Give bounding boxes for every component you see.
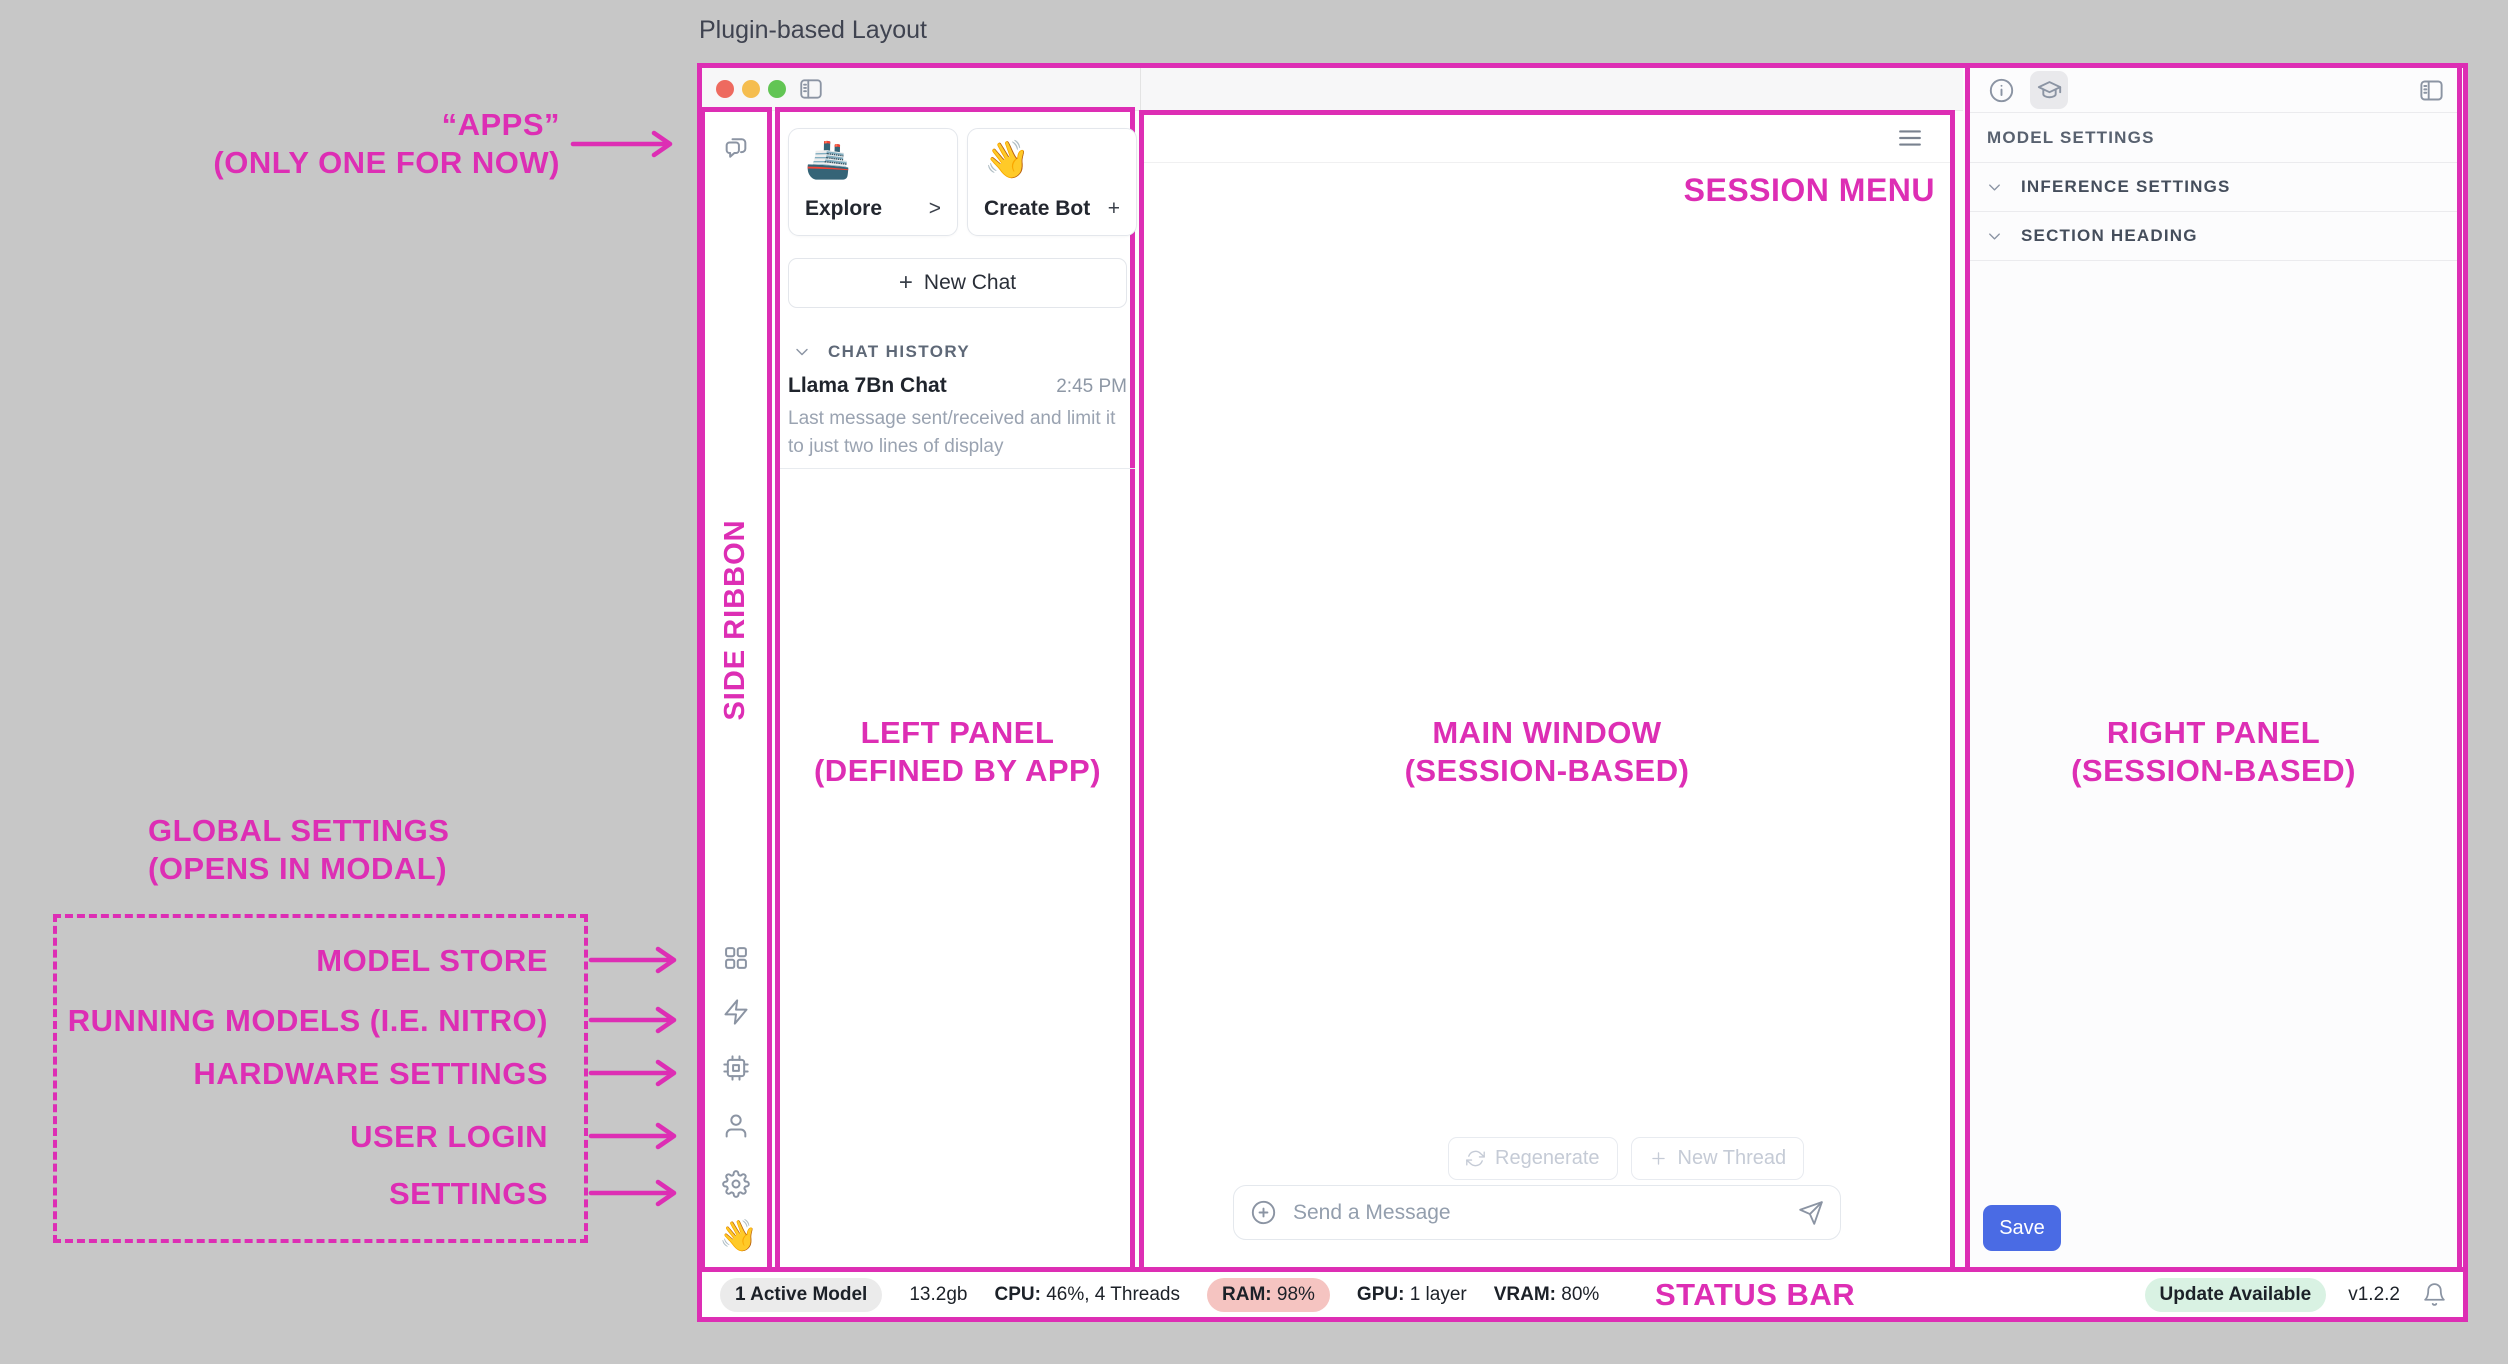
side-ribbon-annotation: SIDE RIBBON xyxy=(718,460,754,780)
right-panel-annotation: RIGHT PANEL (SESSION-BASED) xyxy=(1970,714,2457,791)
left-panel: 🚢 Explore > 👋 Create Bot + + New Chat CH… xyxy=(775,107,1135,1272)
status-bar-right: Update Available v1.2.2 xyxy=(2145,1272,2447,1317)
global-settings-annotation: GLOBAL SETTINGS (OPENS IN MODAL) xyxy=(148,812,449,889)
refresh-icon xyxy=(1466,1149,1485,1168)
create-bot-card-label: Create Bot xyxy=(984,197,1090,221)
plus-glyph: + xyxy=(899,269,913,297)
cpu-usage: CPU: 46%, 4 Threads xyxy=(994,1284,1180,1306)
save-button[interactable]: Save xyxy=(1983,1205,2061,1251)
wave-emoji: 👋 xyxy=(984,141,1030,178)
right-panel-header xyxy=(1970,68,2457,113)
running-models-arrow xyxy=(588,1005,692,1035)
create-bot-card[interactable]: 👋 Create Bot + xyxy=(967,128,1137,236)
wave-emoji[interactable]: 👋 xyxy=(719,1220,758,1251)
settings-annotation: SETTINGS xyxy=(60,1175,548,1213)
update-available-badge[interactable]: Update Available xyxy=(2145,1278,2327,1312)
regenerate-button[interactable]: Regenerate xyxy=(1448,1137,1618,1180)
model-store-icon[interactable] xyxy=(722,944,750,972)
send-icon[interactable] xyxy=(1798,1200,1824,1226)
sidebar-toggle-icon[interactable] xyxy=(798,76,824,102)
status-bar: 1 Active Model 13.2gb CPU: 46%, 4 Thread… xyxy=(702,1272,2463,1317)
plus-icon xyxy=(1649,1149,1668,1168)
chat-app-icon[interactable] xyxy=(722,134,750,162)
settings-arrow xyxy=(588,1178,692,1208)
gpu-usage: GPU: 1 layer xyxy=(1357,1284,1467,1306)
user-login-arrow xyxy=(588,1121,692,1151)
frame-title: Plugin-based Layout xyxy=(699,16,927,45)
section-inference-settings[interactable]: INFERENCE SETTINGS xyxy=(1970,163,2457,212)
ship-emoji: 🚢 xyxy=(805,141,851,178)
app-version: v1.2.2 xyxy=(2348,1284,2400,1306)
explore-card-label: Explore xyxy=(805,197,882,221)
running-models-icon[interactable] xyxy=(722,998,750,1026)
notifications-bell-icon[interactable] xyxy=(2422,1282,2447,1307)
assistant-tab[interactable] xyxy=(2030,71,2068,109)
window-titlebar xyxy=(702,68,1963,111)
new-chat-button[interactable]: + New Chat xyxy=(788,258,1127,308)
explore-card[interactable]: 🚢 Explore > xyxy=(788,128,958,236)
status-bar-left: 1 Active Model 13.2gb CPU: 46%, 4 Thread… xyxy=(720,1272,1599,1317)
main-window: SESSION MENU MAIN WINDOW (SESSION-BASED)… xyxy=(1139,110,1955,1272)
new-chat-label: New Chat xyxy=(924,271,1016,295)
chat-list-item[interactable]: Llama 7Bn Chat 2:45 PM Last message sent… xyxy=(788,374,1127,460)
user-login-icon[interactable] xyxy=(722,1112,750,1140)
ram-usage-badge: RAM: 98% xyxy=(1207,1278,1330,1312)
memory-usage: 13.2gb xyxy=(909,1284,967,1306)
active-model-badge[interactable]: 1 Active Model xyxy=(720,1278,882,1312)
graduation-cap-icon xyxy=(2036,77,2063,104)
plus-glyph: + xyxy=(1108,197,1120,221)
chevron-down-icon xyxy=(792,342,812,362)
chat-history-header[interactable]: CHAT HISTORY xyxy=(792,342,1122,362)
status-bar-annotation: STATUS BAR xyxy=(1655,1276,1855,1314)
session-menu-icon[interactable] xyxy=(1896,126,1924,150)
info-tab[interactable] xyxy=(1982,71,2020,109)
model-settings-header: MODEL SETTINGS xyxy=(1970,113,2457,163)
titlebar-divider xyxy=(1140,68,1141,110)
vram-usage: VRAM: 80% xyxy=(1494,1284,1600,1306)
zoom-button[interactable] xyxy=(768,80,786,98)
hardware-settings-annotation: HARDWARE SETTINGS xyxy=(60,1055,548,1093)
settings-icon[interactable] xyxy=(722,1170,750,1198)
chat-item-time: 2:45 PM xyxy=(1056,376,1127,398)
message-input[interactable] xyxy=(1291,1200,1784,1226)
message-input-container xyxy=(1233,1185,1841,1240)
new-thread-button[interactable]: New Thread xyxy=(1631,1137,1805,1180)
list-divider xyxy=(780,468,1135,469)
chat-item-preview: Last message sent/received and limit it … xyxy=(788,405,1118,460)
apps-arrow xyxy=(570,129,688,159)
chat-history-label: CHAT HISTORY xyxy=(828,342,970,362)
main-window-annotation: MAIN WINDOW (SESSION-BASED) xyxy=(1347,714,1747,791)
chevron-down-icon xyxy=(1985,227,2004,246)
hardware-settings-icon[interactable] xyxy=(722,1054,750,1082)
right-panel: MODEL SETTINGS INFERENCE SETTINGS SECTIO… xyxy=(1965,63,2462,1272)
session-menu-annotation: SESSION MENU xyxy=(1684,171,1935,211)
chevron-right-glyph: > xyxy=(929,197,941,221)
chevron-down-icon xyxy=(1985,178,2004,197)
new-thread-label: New Thread xyxy=(1678,1147,1787,1170)
apps-annotation: “APPS” (ONLY ONE FOR NOW) xyxy=(160,106,560,183)
chat-item-title: Llama 7Bn Chat xyxy=(788,374,947,398)
left-panel-annotation: LEFT PANEL (DEFINED BY APP) xyxy=(780,714,1135,791)
model-store-annotation: MODEL STORE xyxy=(60,942,548,980)
session-header xyxy=(1144,115,1950,163)
regenerate-label: Regenerate xyxy=(1495,1147,1600,1170)
right-panel-toggle-icon[interactable] xyxy=(2418,77,2445,104)
attach-plus-icon[interactable] xyxy=(1250,1199,1277,1226)
hardware-settings-arrow xyxy=(588,1058,692,1088)
running-models-annotation: RUNNING MODELS (I.E. NITRO) xyxy=(60,1002,548,1040)
thread-actions: Regenerate New Thread xyxy=(1448,1137,1804,1180)
model-store-arrow xyxy=(588,945,692,975)
close-button[interactable] xyxy=(716,80,734,98)
design-canvas: Plugin-based Layout 👋 xyxy=(0,0,2508,1364)
user-login-annotation: USER LOGIN xyxy=(60,1118,548,1156)
info-icon xyxy=(1988,77,2015,104)
minimize-button[interactable] xyxy=(742,80,760,98)
section-heading-row[interactable]: SECTION HEADING xyxy=(1970,212,2457,261)
